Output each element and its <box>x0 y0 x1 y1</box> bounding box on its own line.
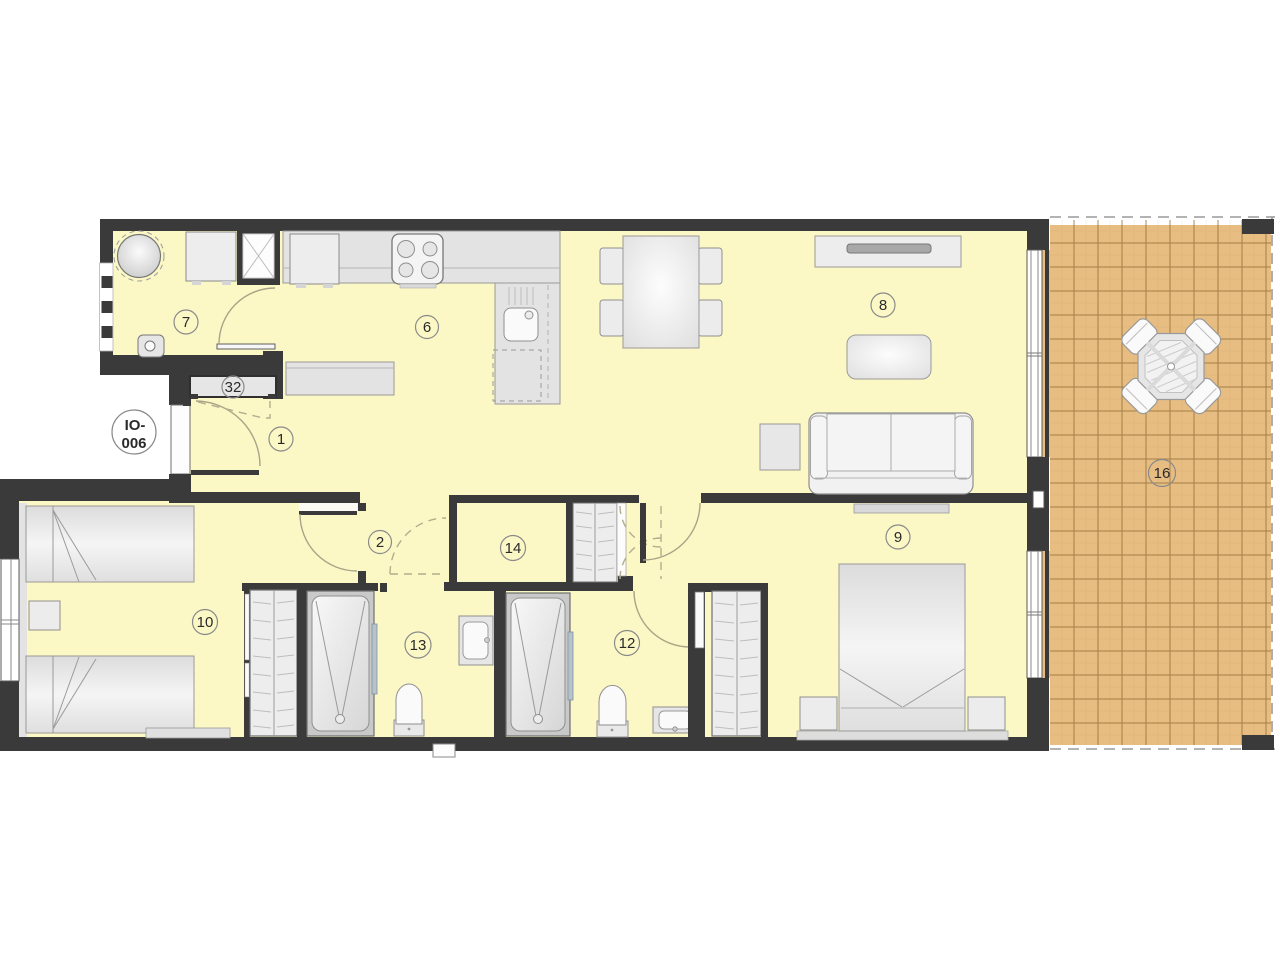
svg-text:14: 14 <box>505 540 522 557</box>
svg-text:12: 12 <box>619 635 636 652</box>
svg-text:006: 006 <box>121 435 146 452</box>
svg-text:1: 1 <box>277 431 285 448</box>
svg-text:32: 32 <box>225 379 242 396</box>
svg-text:13: 13 <box>410 637 427 654</box>
svg-text:10: 10 <box>197 614 214 631</box>
svg-text:16: 16 <box>1154 465 1171 482</box>
svg-text:9: 9 <box>894 529 902 546</box>
svg-text:7: 7 <box>182 314 190 331</box>
svg-text:8: 8 <box>879 297 887 314</box>
svg-text:IO-: IO- <box>125 417 146 434</box>
svg-text:2: 2 <box>376 534 384 551</box>
svg-text:6: 6 <box>423 319 431 336</box>
